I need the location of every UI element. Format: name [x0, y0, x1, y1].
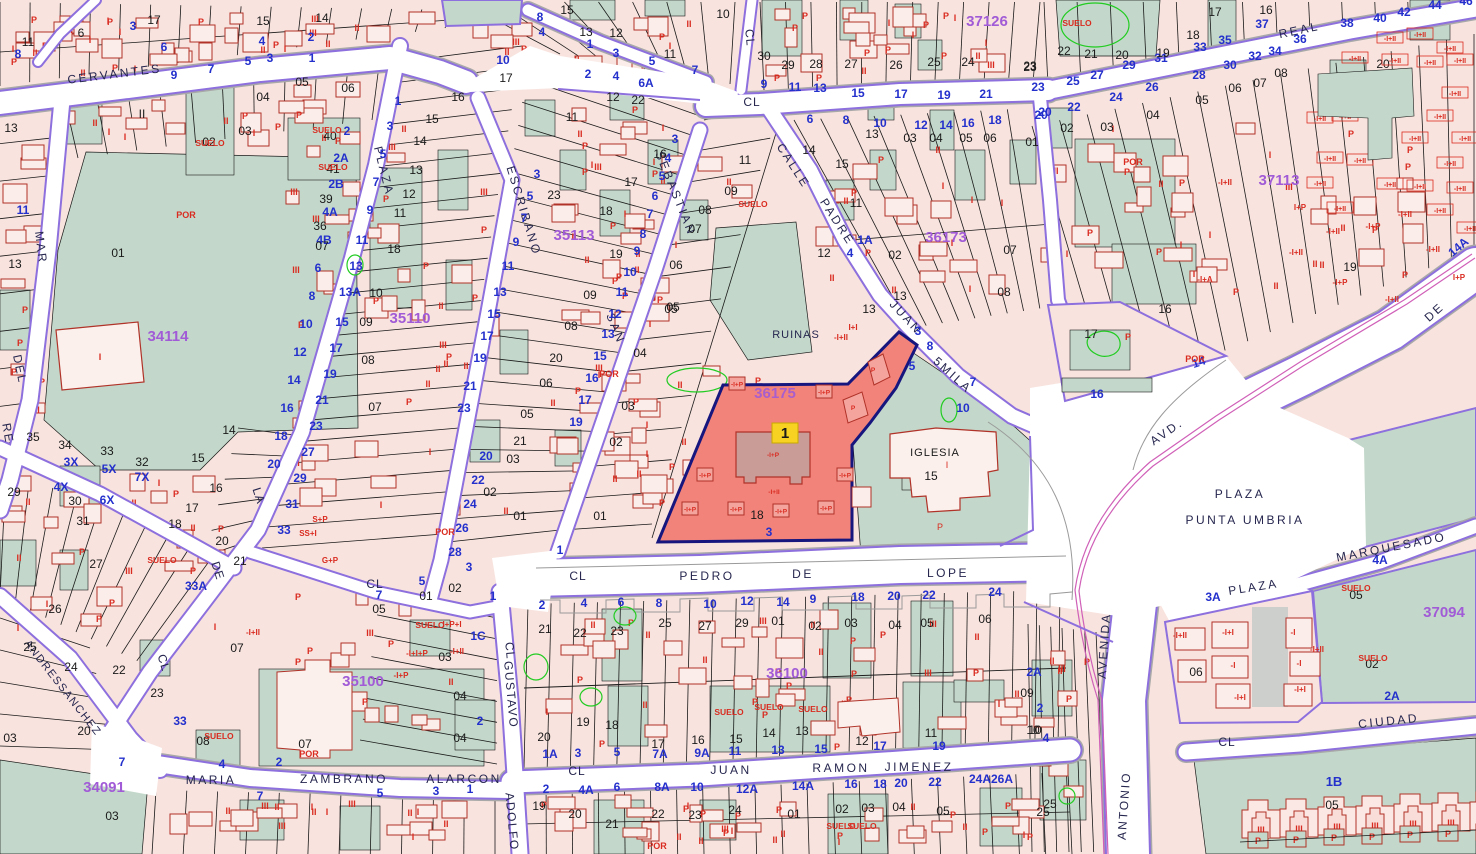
svg-text:18: 18: [988, 113, 1002, 127]
svg-text:P: P: [577, 675, 583, 685]
svg-text:9: 9: [634, 244, 641, 258]
svg-text:17: 17: [1208, 5, 1222, 19]
svg-text:P: P: [659, 498, 665, 508]
svg-text:27: 27: [1090, 68, 1104, 82]
svg-text:P: P: [786, 681, 792, 691]
svg-text:II: II: [1057, 666, 1062, 676]
svg-text:35: 35: [26, 430, 40, 444]
svg-text:4: 4: [1043, 731, 1050, 745]
svg-text:06: 06: [669, 258, 683, 272]
svg-text:21: 21: [1084, 47, 1098, 61]
svg-text:14: 14: [776, 595, 790, 609]
svg-text:II: II: [139, 107, 146, 121]
svg-text:1C: 1C: [470, 629, 486, 643]
svg-text:8: 8: [640, 227, 647, 241]
svg-text:-I+II: -I+II: [1289, 248, 1303, 257]
svg-text:II: II: [92, 118, 97, 128]
svg-text:19: 19: [609, 247, 623, 261]
svg-text:11: 11: [22, 35, 35, 49]
svg-text:17: 17: [499, 71, 513, 85]
svg-text:-I+I: -I+I: [1294, 685, 1306, 694]
svg-text:14: 14: [762, 726, 776, 740]
svg-text:05: 05: [666, 300, 680, 314]
svg-text:21: 21: [233, 554, 247, 568]
svg-text:02: 02: [1060, 121, 1074, 135]
svg-text:25: 25: [658, 616, 672, 630]
svg-text:P: P: [1369, 832, 1375, 842]
svg-text:1: 1: [467, 782, 474, 796]
svg-text:13: 13: [771, 743, 785, 757]
svg-text:24: 24: [988, 585, 1002, 599]
svg-text:SS+I: SS+I: [299, 529, 317, 538]
svg-text:I: I: [591, 160, 594, 170]
svg-text:9: 9: [761, 77, 768, 91]
svg-text:08: 08: [564, 319, 578, 333]
svg-text:10: 10: [623, 265, 637, 279]
svg-text:6: 6: [652, 189, 659, 203]
svg-text:II: II: [325, 39, 330, 49]
svg-text:07: 07: [1003, 243, 1017, 257]
svg-text:06: 06: [1189, 665, 1203, 679]
svg-text:17: 17: [651, 737, 665, 751]
svg-text:08: 08: [997, 285, 1011, 299]
svg-text:P: P: [776, 805, 782, 815]
svg-text:P: P: [1445, 829, 1451, 839]
svg-text:7: 7: [257, 789, 264, 803]
svg-text:I: I: [546, 707, 549, 717]
svg-text:I: I: [1269, 150, 1272, 160]
svg-text:12: 12: [914, 118, 928, 132]
svg-text:6X: 6X: [100, 493, 115, 507]
svg-text:18: 18: [873, 777, 887, 791]
svg-text:7: 7: [521, 211, 528, 225]
svg-text:16: 16: [961, 116, 975, 130]
svg-text:5: 5: [527, 189, 534, 203]
svg-text:II: II: [780, 829, 785, 839]
svg-text:8: 8: [843, 113, 850, 127]
svg-text:20: 20: [537, 730, 551, 744]
svg-text:02: 02: [808, 619, 822, 633]
svg-text:P: P: [599, 739, 605, 749]
svg-text:I: I: [99, 352, 102, 362]
svg-text:11: 11: [566, 110, 579, 124]
svg-text:9: 9: [513, 235, 520, 249]
svg-text:12: 12: [855, 734, 869, 748]
svg-text:16: 16: [209, 481, 223, 495]
svg-text:23: 23: [688, 808, 702, 822]
svg-text:SUELO: SUELO: [1062, 18, 1092, 28]
svg-text:15: 15: [560, 3, 574, 17]
svg-text:07: 07: [315, 239, 329, 253]
svg-text:3: 3: [534, 167, 541, 181]
svg-text:-I: -I: [1297, 659, 1302, 668]
svg-text:36100: 36100: [766, 665, 808, 682]
svg-text:19: 19: [1156, 46, 1170, 60]
svg-text:32: 32: [1248, 49, 1262, 63]
svg-text:33A: 33A: [185, 579, 207, 593]
svg-text:12: 12: [293, 345, 307, 359]
svg-text:P: P: [1179, 178, 1185, 188]
svg-text:JUAN: JUAN: [710, 763, 751, 777]
svg-text:P: P: [950, 810, 956, 820]
svg-text:24: 24: [463, 497, 477, 511]
svg-text:05: 05: [959, 131, 973, 145]
svg-text:I: I: [284, 44, 287, 54]
svg-text:II: II: [829, 273, 834, 283]
svg-text:P: P: [659, 32, 665, 42]
svg-text:4A: 4A: [578, 783, 594, 797]
svg-text:II: II: [1049, 656, 1054, 666]
svg-text:04: 04: [256, 90, 270, 104]
svg-text:II: II: [974, 632, 979, 642]
svg-text:I: I: [675, 240, 678, 250]
svg-text:SUELO: SUELO: [312, 125, 342, 135]
svg-text:SUELO: SUELO: [754, 702, 784, 712]
svg-text:P: P: [22, 305, 28, 315]
svg-text:36: 36: [313, 219, 327, 233]
svg-text:P: P: [295, 592, 301, 602]
svg-text:II: II: [698, 836, 703, 846]
svg-text:-I+II: -I+II: [1454, 186, 1466, 193]
svg-text:II: II: [843, 196, 848, 206]
svg-text:35100: 35100: [342, 673, 384, 690]
svg-text:II: II: [225, 806, 230, 816]
svg-text:SUELO: SUELO: [1341, 583, 1371, 593]
svg-text:SUELO: SUELO: [318, 162, 348, 172]
svg-text:I: I: [969, 284, 972, 294]
svg-text:05: 05: [1325, 798, 1339, 812]
svg-text:04: 04: [453, 689, 467, 703]
svg-text:1: 1: [490, 589, 497, 603]
svg-text:15: 15: [191, 451, 205, 465]
svg-text:13: 13: [579, 25, 593, 39]
svg-text:13: 13: [865, 127, 879, 141]
svg-text:II: II: [636, 469, 641, 479]
svg-text:I: I: [1193, 269, 1196, 279]
svg-text:7: 7: [208, 62, 215, 76]
svg-text:20: 20: [1034, 108, 1048, 122]
svg-text:-I+P: -I+P: [767, 452, 780, 459]
svg-text:02: 02: [448, 581, 462, 595]
svg-text:POR: POR: [599, 369, 619, 379]
svg-text:I: I: [662, 123, 665, 133]
svg-text:III: III: [987, 60, 995, 70]
svg-text:38: 38: [1340, 16, 1354, 30]
svg-text:26: 26: [1145, 80, 1159, 94]
svg-text:15: 15: [924, 469, 938, 483]
svg-text:23: 23: [150, 686, 164, 700]
svg-text:I: I: [912, 30, 915, 40]
svg-text:37113: 37113: [1259, 172, 1300, 189]
svg-text:20: 20: [1115, 48, 1129, 62]
svg-text:-I+II: -I+II: [1444, 46, 1456, 53]
svg-text:9: 9: [810, 592, 817, 606]
svg-text:23: 23: [1023, 60, 1037, 74]
svg-text:33: 33: [100, 444, 114, 458]
svg-text:6: 6: [315, 261, 322, 275]
svg-text:4A: 4A: [1372, 553, 1388, 567]
svg-text:19: 19: [323, 367, 337, 381]
svg-text:PUNTA UMBRIA: PUNTA UMBRIA: [1185, 513, 1304, 527]
svg-text:-I+P: -I+P: [1366, 222, 1382, 231]
svg-text:P: P: [388, 639, 394, 649]
svg-text:P: P: [1402, 270, 1408, 280]
svg-text:34091: 34091: [83, 779, 125, 796]
svg-text:11: 11: [664, 47, 677, 61]
svg-text:15: 15: [835, 157, 849, 171]
svg-text:RE: RE: [0, 422, 17, 445]
svg-text:9A: 9A: [694, 746, 710, 760]
svg-text:II: II: [686, 19, 691, 29]
svg-text:22: 22: [651, 807, 665, 821]
svg-text:-I+P: -I+P: [820, 506, 833, 513]
svg-text:II: II: [274, 802, 279, 812]
svg-text:31: 31: [285, 497, 299, 511]
svg-text:33: 33: [173, 714, 187, 728]
svg-text:6: 6: [807, 112, 814, 126]
svg-text:01: 01: [1025, 135, 1039, 149]
svg-text:37126: 37126: [966, 13, 1008, 30]
svg-text:I: I: [646, 420, 649, 430]
svg-text:ZAMBRANO: ZAMBRANO: [300, 772, 388, 786]
svg-text:-I+II: -I+II: [1326, 227, 1340, 236]
svg-text:2: 2: [543, 782, 550, 796]
svg-text:35113: 35113: [554, 227, 595, 244]
svg-text:II: II: [935, 145, 940, 155]
svg-text:01: 01: [111, 246, 125, 260]
svg-text:19: 19: [569, 415, 583, 429]
svg-text:P: P: [1405, 162, 1411, 172]
svg-text:SUELO: SUELO: [714, 707, 744, 717]
svg-text:SUELO: SUELO: [204, 731, 234, 741]
svg-text:29: 29: [735, 616, 749, 630]
svg-text:09: 09: [359, 315, 373, 329]
svg-text:10: 10: [299, 317, 313, 331]
svg-text:-I: -I: [1291, 628, 1296, 637]
svg-text:14: 14: [939, 118, 953, 132]
svg-text:03: 03: [105, 809, 119, 823]
svg-text:01: 01: [593, 509, 607, 523]
svg-text:5: 5: [419, 574, 426, 588]
svg-text:42: 42: [1397, 5, 1411, 19]
svg-text:III: III: [759, 616, 767, 626]
svg-text:P: P: [885, 45, 891, 55]
svg-text:II: II: [16, 553, 21, 563]
svg-text:6: 6: [161, 40, 168, 54]
svg-text:POR: POR: [647, 841, 667, 851]
svg-text:DE: DE: [792, 567, 814, 581]
svg-text:II: II: [702, 655, 707, 665]
svg-text:-I+II: -I+II: [1434, 208, 1446, 215]
svg-text:P: P: [878, 155, 884, 165]
svg-text:10: 10: [496, 53, 510, 67]
svg-text:13: 13: [493, 285, 507, 299]
svg-text:21: 21: [463, 379, 477, 393]
svg-text:20: 20: [77, 724, 91, 738]
svg-text:20: 20: [549, 351, 563, 365]
svg-text:I: I: [429, 447, 432, 457]
svg-text:13: 13: [813, 81, 827, 95]
svg-text:18: 18: [851, 590, 865, 604]
svg-text:03: 03: [861, 801, 875, 815]
svg-text:03: 03: [3, 731, 17, 745]
svg-text:P: P: [198, 17, 204, 27]
svg-text:-I+I+P: -I+I+P: [406, 649, 428, 658]
svg-text:4: 4: [539, 25, 546, 39]
svg-text:-I+II: -I+II: [1414, 184, 1426, 191]
svg-text:II: II: [1273, 281, 1278, 291]
svg-text:06: 06: [983, 131, 997, 145]
svg-text:13: 13: [601, 327, 615, 341]
svg-text:02: 02: [835, 802, 849, 816]
svg-text:-I+II: -I+II: [1384, 182, 1396, 189]
svg-text:I: I: [888, 18, 891, 28]
svg-text:2: 2: [276, 755, 283, 769]
svg-text:18: 18: [1186, 28, 1200, 42]
svg-text:I: I: [971, 195, 974, 205]
svg-text:13: 13: [893, 289, 907, 303]
svg-text:09: 09: [1020, 686, 1034, 700]
svg-text:SUELO: SUELO: [738, 199, 768, 209]
svg-text:-I+II: -I+II: [1384, 36, 1396, 43]
svg-text:I+P: I+P: [1294, 203, 1307, 212]
svg-text:I: I: [731, 826, 734, 836]
svg-text:20: 20: [894, 776, 908, 790]
svg-text:II: II: [550, 398, 555, 408]
svg-text:-I+II: -I+II: [450, 647, 464, 656]
svg-text:-I+II: -I+II: [1449, 91, 1461, 98]
svg-text:III: III: [924, 668, 932, 678]
svg-text:III: III: [366, 628, 374, 638]
svg-text:34: 34: [58, 438, 72, 452]
svg-text:23: 23: [547, 188, 561, 202]
svg-text:04: 04: [929, 131, 943, 145]
svg-text:-I+II: -I+II: [1409, 136, 1421, 143]
svg-text:7: 7: [376, 588, 383, 602]
svg-text:21: 21: [315, 393, 329, 407]
svg-text:37094: 37094: [1423, 604, 1465, 621]
svg-text:RAMON: RAMON: [812, 761, 869, 775]
svg-text:POR: POR: [435, 527, 455, 537]
svg-text:3: 3: [613, 46, 620, 60]
svg-text:15: 15: [425, 112, 439, 126]
svg-text:-I+P: -I+P: [684, 507, 697, 514]
svg-text:II: II: [1158, 179, 1163, 189]
svg-text:II: II: [642, 700, 647, 710]
svg-text:5: 5: [380, 147, 387, 161]
svg-text:08: 08: [361, 353, 375, 367]
svg-text:15: 15: [256, 14, 270, 28]
svg-text:03: 03: [506, 452, 520, 466]
svg-text:III: III: [292, 265, 300, 275]
svg-text:P: P: [871, 367, 876, 374]
svg-text:I: I: [108, 127, 111, 137]
svg-text:1: 1: [781, 425, 789, 442]
svg-text:4: 4: [847, 246, 854, 260]
svg-text:06: 06: [1228, 81, 1242, 95]
svg-text:12A: 12A: [736, 782, 758, 796]
svg-text:I+P+I: I+P+I: [442, 620, 461, 629]
svg-text:I: I: [253, 128, 256, 138]
svg-text:9: 9: [367, 203, 374, 217]
svg-text:4: 4: [259, 34, 266, 48]
svg-text:8A: 8A: [654, 780, 670, 794]
svg-text:07: 07: [688, 222, 702, 236]
svg-text:P: P: [851, 669, 857, 679]
svg-text:I: I: [998, 699, 1001, 709]
svg-text:36175: 36175: [754, 385, 796, 402]
svg-text:19: 19: [532, 799, 546, 813]
svg-text:30: 30: [1223, 58, 1237, 72]
svg-text:36: 36: [1293, 32, 1307, 46]
svg-text:2: 2: [308, 30, 315, 44]
svg-text:P: P: [582, 141, 588, 151]
svg-text:MARIA: MARIA: [186, 773, 237, 787]
svg-text:21: 21: [979, 87, 993, 101]
svg-text:44: 44: [1428, 0, 1442, 12]
svg-text:3: 3: [672, 132, 679, 146]
svg-text:II: II: [425, 379, 430, 389]
svg-text:04: 04: [633, 346, 647, 360]
svg-text:P: P: [31, 15, 37, 25]
svg-text:-I+II: -I+II: [1218, 178, 1232, 187]
svg-text:P: P: [273, 40, 279, 50]
svg-text:15: 15: [487, 307, 501, 321]
svg-text:23: 23: [457, 401, 471, 415]
svg-text:25: 25: [1043, 797, 1057, 811]
svg-text:III: III: [721, 824, 729, 834]
svg-text:07: 07: [368, 400, 382, 414]
svg-text:P: P: [851, 405, 856, 412]
svg-text:16: 16: [1090, 387, 1104, 401]
svg-text:P: P: [864, 48, 870, 58]
svg-text:4: 4: [581, 596, 588, 610]
svg-text:-I+II: -I+II: [834, 333, 848, 342]
svg-text:10: 10: [369, 286, 383, 300]
svg-text:I+I: I+I: [848, 323, 857, 332]
svg-text:I: I: [1001, 198, 1004, 208]
svg-text:II: II: [503, 506, 508, 516]
svg-text:2A: 2A: [1026, 665, 1042, 679]
svg-text:I: I: [311, 802, 314, 812]
svg-text:-I+II: -I+II: [1389, 58, 1401, 65]
svg-text:13: 13: [795, 724, 809, 738]
svg-text:29: 29: [7, 485, 21, 499]
svg-text:P: P: [446, 352, 452, 362]
svg-text:I: I: [89, 35, 92, 45]
svg-text:03: 03: [238, 124, 252, 138]
svg-text:I: I: [946, 460, 949, 470]
svg-text:-I+P: -I+P: [731, 382, 744, 389]
svg-text:4X: 4X: [54, 480, 69, 494]
svg-text:13: 13: [862, 302, 876, 316]
svg-text:P: P: [610, 221, 616, 231]
svg-text:III: III: [512, 37, 520, 47]
svg-text:16: 16: [1158, 302, 1172, 316]
svg-text:III: III: [348, 799, 356, 809]
svg-text:37: 37: [1255, 17, 1269, 31]
svg-text:11: 11: [394, 206, 407, 220]
svg-text:CL: CL: [568, 764, 585, 778]
svg-text:34: 34: [1268, 44, 1282, 58]
svg-text:CL: CL: [743, 95, 760, 109]
svg-text:III: III: [125, 566, 133, 576]
svg-text:05: 05: [520, 407, 534, 421]
svg-text:-I+II: -I+II: [1454, 58, 1466, 65]
svg-text:24A26A: 24A26A: [969, 772, 1013, 786]
svg-text:04: 04: [1146, 108, 1160, 122]
svg-text:23: 23: [610, 624, 624, 638]
